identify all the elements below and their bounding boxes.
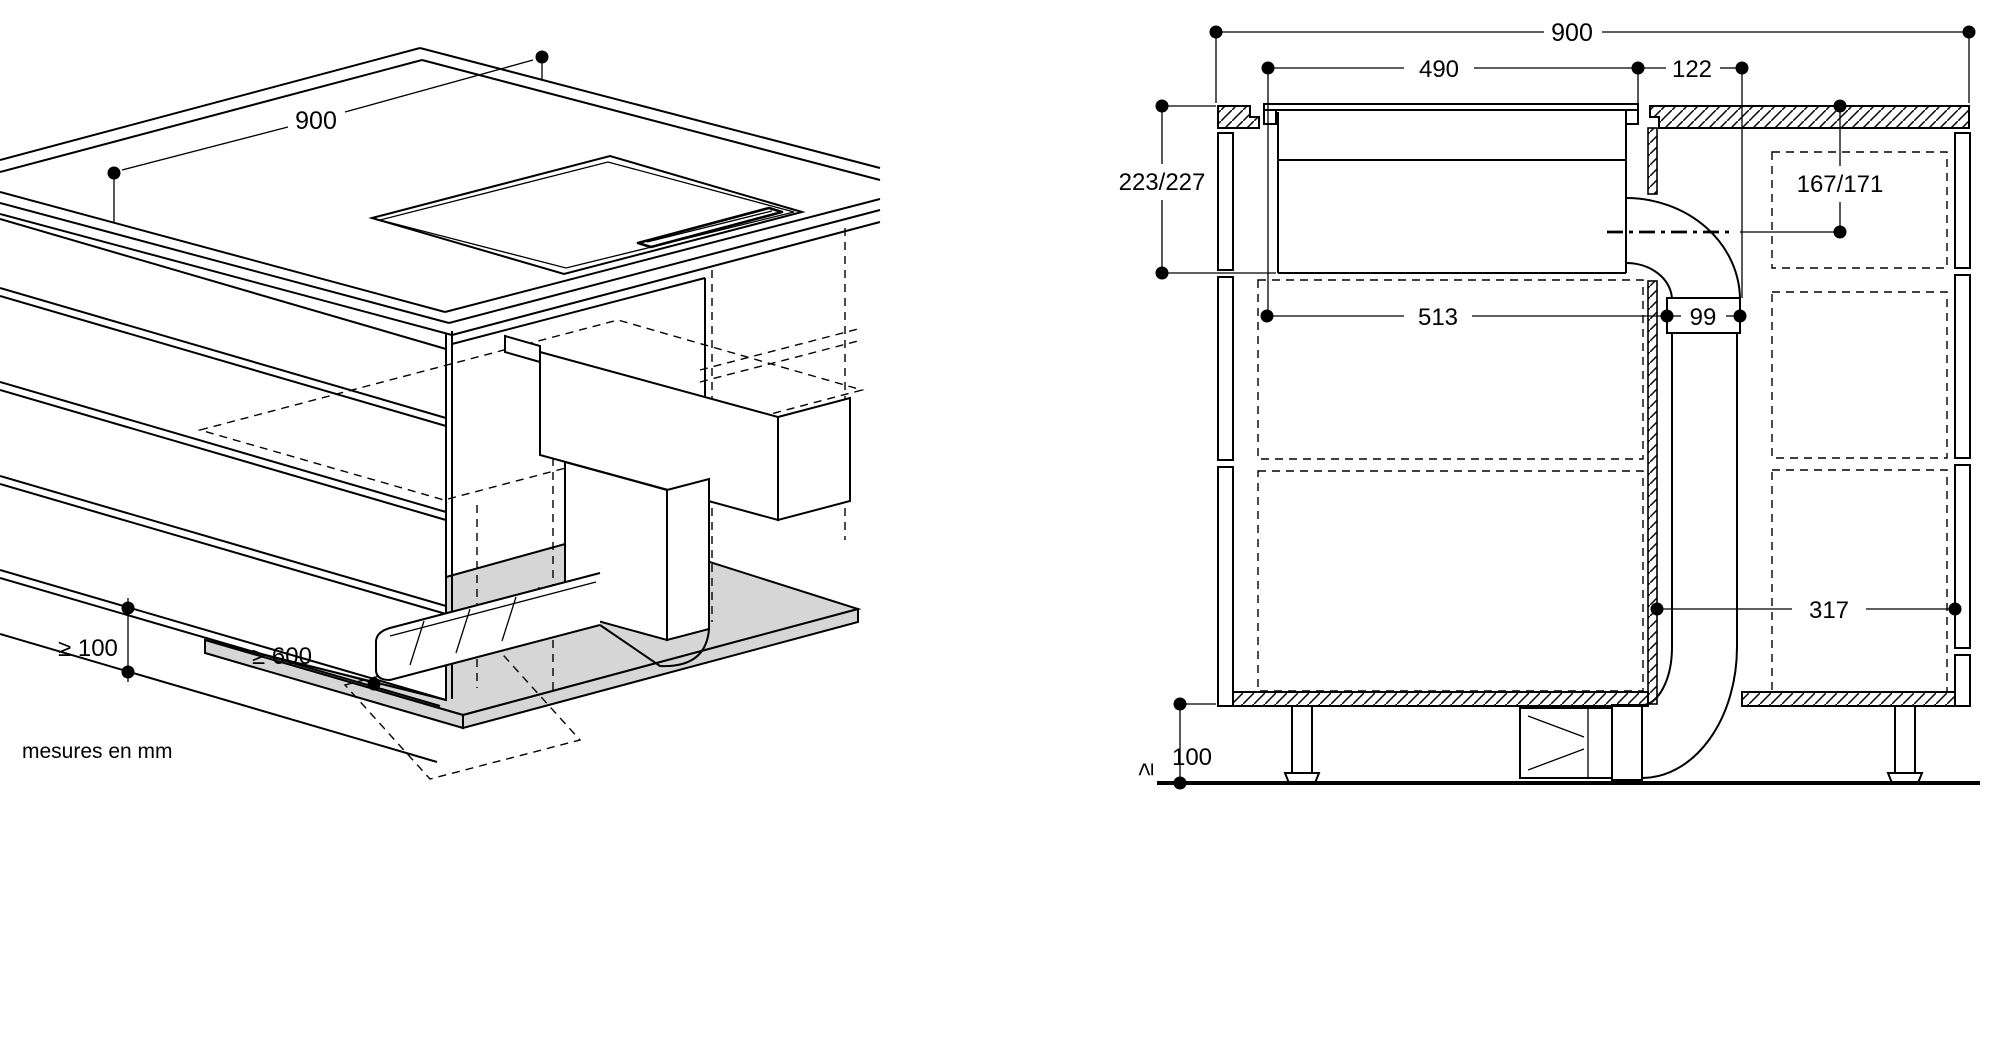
plinth-diffuser-section [1520, 708, 1612, 778]
depth-label: 223/227 [1119, 169, 1206, 196]
side-clearance-label: 317 [1809, 597, 1849, 624]
technical-drawing: 900 ≥ 100 ≥ 600 [0, 0, 2000, 1050]
dimension-clear-width: 513 [1261, 304, 1674, 331]
right-wall [1955, 133, 1970, 706]
offset-label: 122 [1672, 56, 1712, 83]
iso-clearance-label: ≥ 600 [252, 643, 312, 670]
dimension-plinth-height: ≥ 100 [1132, 698, 1216, 790]
plinth-height-label: 100 [1172, 744, 1212, 771]
clear-width-label: 513 [1418, 304, 1458, 331]
iso-plinth-label: ≥ 100 [58, 635, 118, 662]
dimension-offset: 122 [1644, 56, 1749, 298]
iso-width-label: 900 [295, 107, 337, 135]
duct-width-label: 99 [1690, 304, 1717, 331]
cooktop-section [1264, 104, 1638, 124]
plinth-height-symbol: ≥ [1132, 763, 1159, 776]
cutout-width-label: 490 [1419, 56, 1459, 83]
isometric-view: 900 ≥ 100 ≥ 600 [0, 48, 880, 779]
plenum-box-section [1278, 112, 1626, 273]
outlet-axis-label: 167/171 [1797, 171, 1884, 198]
section-view: 900 490 122 223/227 167/171 [1119, 19, 1980, 790]
countertop [0, 48, 880, 335]
dimension-cutout-width: 490 [1262, 56, 1645, 310]
total-width-label: 900 [1551, 19, 1593, 47]
cabinet-floor [1233, 692, 1955, 706]
left-wall [1218, 133, 1233, 706]
dimension-total-width: 900 [1210, 19, 1976, 103]
cooktop [372, 156, 802, 274]
installation-drawing-page: 900 ≥ 100 ≥ 600 [0, 0, 2000, 1050]
partition-wall [1648, 128, 1657, 704]
dimension-iso-plinth: ≥ 100 [58, 598, 135, 682]
units-note: mesures en mm [22, 740, 173, 764]
dimension-side-clearance: 317 [1651, 597, 1962, 624]
